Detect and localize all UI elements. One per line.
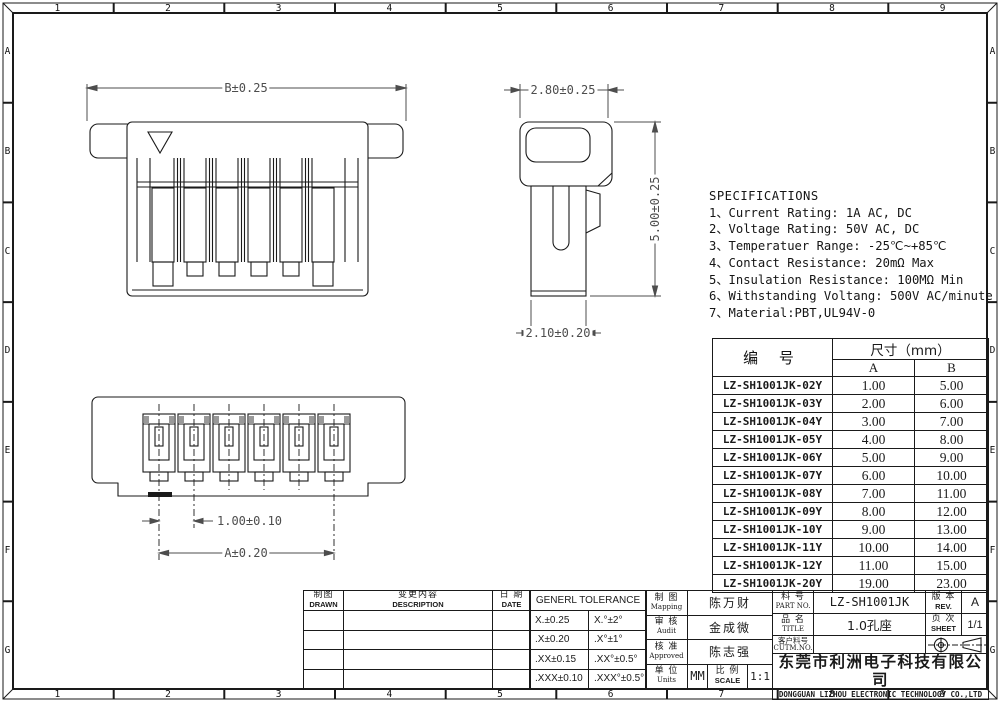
border-zone-column-label: 9 [887,3,998,13]
size-value-cell: 7.00 [915,413,989,431]
tolerance-row: .X±0.20.X°±1° [530,630,647,650]
revision-empty-cell [344,669,493,689]
part-number-cell: LZ-SH1001JK-08Y [713,485,833,503]
rev-label: 版 本REV. [926,591,962,614]
border-zone-row-label: D [3,301,13,401]
size-value-cell: 11.00 [833,557,915,575]
border-zone-column-label: 9 [887,690,998,700]
approved-label: 核 准Approved [646,640,688,665]
border-zone-column-label: 5 [445,3,556,13]
audit-label: 审 核Audit [646,615,688,640]
spec-line: 6、Withstanding Voltang: 500V AC/minute [709,288,993,305]
size-value-cell: 9.00 [833,521,915,539]
part-number-cell: LZ-SH1001JK-07Y [713,467,833,485]
drawing-sheet: B±0.25 2.80±0.25 5.00±0.25 2.10±0.20 1.0… [0,0,1000,702]
tolerance-row: .XXX±0.10.XXX°±0.5° [530,669,647,689]
spec-line: 5、Insulation Resistance: 100MΩ Min [709,272,993,289]
tolerance-value-cell: .XX°±0.5° [589,650,647,670]
tolerance-title: GENERL TOLERANCE [530,591,647,611]
border-zone-column-label: 5 [445,690,556,700]
projection-angle-cell [926,636,989,654]
border-zone-row-label: C [988,201,998,301]
size-value-cell: 13.00 [915,521,989,539]
part-number-cell: LZ-SH1001JK-11Y [713,539,833,557]
border-zone-row-label: G [3,600,13,700]
size-value-cell: 12.00 [915,503,989,521]
rev-value: A [962,591,989,614]
dim-label-side-top: 2.80±0.25 [528,83,597,97]
border-zone-column-label: 3 [223,3,334,13]
scale-label: 比 例SCALE [708,664,748,689]
border-zone-column-label: 1 [2,3,113,13]
revision-empty-cell [344,611,493,631]
size-value-cell: 10.00 [915,467,989,485]
parts-table-row: LZ-SH1001JK-11Y10.0014.00 [713,539,989,557]
col-header-part-no: 编 号 [713,339,833,377]
parts-table-row: LZ-SH1001JK-10Y9.0013.00 [713,521,989,539]
sheet-value: 1/1 [962,614,989,636]
revision-empty-cell [493,630,531,650]
customer-no-value [814,636,926,654]
revision-empty-cell [493,669,531,689]
parts-size-table: 编 号 尺寸（mm） A B LZ-SH1001JK-02Y1.005.00LZ… [712,338,989,593]
revision-empty-cell [304,611,344,631]
tolerance-value-cell: X.±0.25 [530,611,589,631]
part-number-cell: LZ-SH1001JK-03Y [713,395,833,413]
units-value: MM [688,664,708,689]
part-no-label: 料 号PART NO. [773,591,814,614]
size-value-cell: 5.00 [833,449,915,467]
audit-value: 金成微 [688,615,773,640]
parts-table-row: LZ-SH1001JK-05Y4.008.00 [713,431,989,449]
border-zone-column-label: 7 [666,3,777,13]
projection-angle-icon [927,637,987,653]
border-zone-row-label: B [988,102,998,202]
parts-table-row: LZ-SH1001JK-02Y1.005.00 [713,377,989,395]
specifications-list: 1、Current Rating: 1A AC, DC2、Voltage Rat… [709,205,993,322]
part-number-cell: LZ-SH1001JK-10Y [713,521,833,539]
size-value-cell: 8.00 [833,503,915,521]
part-number-cell: LZ-SH1001JK-06Y [713,449,833,467]
part-number-cell: LZ-SH1001JK-09Y [713,503,833,521]
size-value-cell: 10.00 [833,539,915,557]
border-zone-column-label: 3 [223,690,334,700]
bottom-view [92,397,405,560]
border-zone-row-label: E [988,401,998,501]
border-zone-column-label: 4 [334,3,445,13]
parts-table-row: LZ-SH1001JK-04Y3.007.00 [713,413,989,431]
parts-table-row: LZ-SH1001JK-08Y7.0011.00 [713,485,989,503]
front-view [90,122,403,296]
size-value-cell: 4.00 [833,431,915,449]
tolerance-value-cell: .XXX±0.10 [530,669,589,689]
revision-empty-cell [493,650,531,670]
dim-label-front-width: B±0.25 [222,81,269,95]
mapping-label: 制 图Mapping [646,591,688,616]
tolerance-value-cell: .X±0.20 [530,630,589,650]
size-value-cell: 5.00 [915,377,989,395]
title-block-approval-section: 制 图Mapping 陈万财 审 核Audit 金成微 核 准Approved … [645,590,773,689]
size-value-cell: 14.00 [915,539,989,557]
dim-label-span: A±0.20 [222,546,269,560]
border-zone-row-label: D [988,301,998,401]
parts-table-row: LZ-SH1001JK-09Y8.0012.00 [713,503,989,521]
specifications-title: SPECIFICATIONS [709,188,993,205]
revision-empty-cell [493,611,531,631]
part-number-cell: LZ-SH1001JK-04Y [713,413,833,431]
parts-table-row: LZ-SH1001JK-03Y2.006.00 [713,395,989,413]
scale-value: 1:1 [748,664,773,689]
date-header: 日 期 DATE [493,591,531,611]
spec-line: 3、Temperatuer Range: -25℃~+85℃ [709,238,993,255]
border-zone-column-label: 8 [777,690,888,700]
company-name-cn: 东莞市利洲电子科技有限公司 [773,654,988,690]
side-view [520,122,612,296]
tolerance-row: X.±0.25X.°±2° [530,611,647,631]
col-header-b: B [915,360,989,377]
dim-label-side-height: 5.00±0.25 [648,174,662,243]
size-value-cell: 7.00 [833,485,915,503]
parts-table-row: LZ-SH1001JK-07Y6.0010.00 [713,467,989,485]
revision-empty-cell [344,630,493,650]
border-zone-column-label: 2 [113,690,224,700]
border-zone-row-label: E [3,401,13,501]
size-value-cell: 8.00 [915,431,989,449]
tolerance-value-cell: .XX±0.15 [530,650,589,670]
spec-line: 2、Voltage Rating: 50V AC, DC [709,221,993,238]
revision-empty-cell [304,669,344,689]
border-zone-row-label: A [988,2,998,102]
parts-table-row: LZ-SH1001JK-06Y5.009.00 [713,449,989,467]
specifications-block: SPECIFICATIONS 1、Current Rating: 1A AC, … [709,188,993,322]
border-zone-row-label: F [3,501,13,601]
size-value-cell: 6.00 [833,467,915,485]
size-value-cell: 11.00 [915,485,989,503]
size-value-cell: 6.00 [915,395,989,413]
spec-line: 4、Contact Resistance: 20mΩ Max [709,255,993,272]
description-header: 变更内容 DESCRIPTION [344,591,493,611]
title-block-revision-section: 制图 DRAWN 变更内容 DESCRIPTION 日 期 DATE [303,590,531,689]
part-number-cell: LZ-SH1001JK-12Y [713,557,833,575]
revision-empty-cell [304,650,344,670]
tolerance-value-cell: X.°±2° [589,611,647,631]
part-number-cell: LZ-SH1001JK-05Y [713,431,833,449]
size-value-cell: 15.00 [915,557,989,575]
parts-table-row: LZ-SH1001JK-12Y11.0015.00 [713,557,989,575]
tolerance-row: .XX±0.15.XX°±0.5° [530,650,647,670]
mapping-value: 陈万财 [688,591,773,616]
dim-label-pitch: 1.00±0.10 [215,514,284,528]
title-block-part-section: 料 号PART NO. LZ-SH1001JK 版 本REV. A 品 名TIT… [772,590,989,700]
col-header-size: 尺寸（mm） [833,339,989,360]
tolerance-value-cell: .X°±1° [589,630,647,650]
size-value-cell: 2.00 [833,395,915,413]
border-zone-column-label: 8 [777,3,888,13]
border-zone-row-label: F [988,501,998,601]
tolerance-value-cell: .XXX°±0.5° [589,669,647,689]
col-header-a: A [833,360,915,377]
units-label: 单 位Units [646,664,688,689]
title-block-tolerance-section: GENERL TOLERANCE X.±0.25X.°±2°.X±0.20.X°… [529,590,647,689]
border-zone-column-label: 7 [666,690,777,700]
customer-no-label: 客户料号 CUTM.NO. [773,636,814,654]
border-zone-column-label: 6 [555,3,666,13]
product-title-label: 品 名TITLE [773,614,814,636]
drawn-header: 制图 DRAWN [304,591,344,611]
part-number-cell: LZ-SH1001JK-02Y [713,377,833,395]
border-zone-row-label: B [3,102,13,202]
border-zone-column-label: 4 [334,690,445,700]
border-zone-row-label: C [3,201,13,301]
revision-empty-cell [304,630,344,650]
product-title-value: 1.0孔座 [814,614,926,636]
dim-label-side-bottom: 2.10±0.20 [523,326,592,340]
approved-value: 陈志强 [688,640,773,665]
spec-line: 1、Current Rating: 1A AC, DC [709,205,993,222]
size-value-cell: 1.00 [833,377,915,395]
border-zone-row-label: A [3,2,13,102]
border-zone-column-label: 2 [113,3,224,13]
part-no-value: LZ-SH1001JK [814,591,926,614]
border-zone-column-label: 1 [2,690,113,700]
border-zone-column-label: 6 [555,690,666,700]
size-value-cell: 9.00 [915,449,989,467]
sheet-label: 页 次SHEET [926,614,962,636]
border-zone-row-label: G [988,600,998,700]
spec-line: 7、Material:PBT,UL94V-0 [709,305,993,322]
size-value-cell: 3.00 [833,413,915,431]
revision-empty-cell [344,650,493,670]
